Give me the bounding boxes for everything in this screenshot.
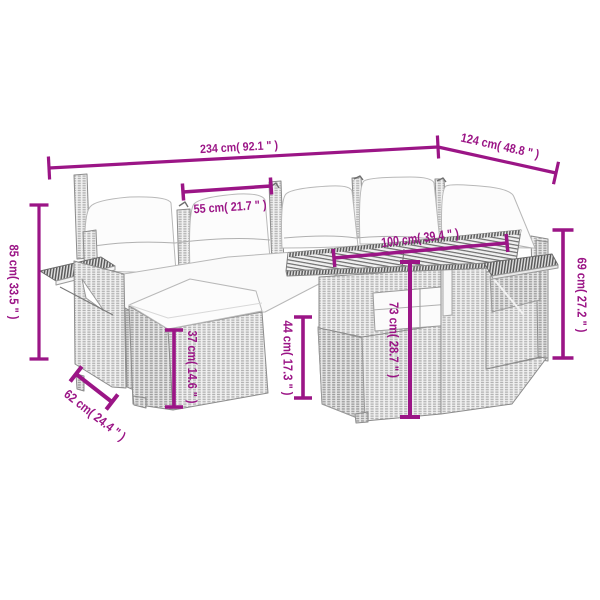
svg-text:37 cm( 14.6 " ): 37 cm( 14.6 " ) [185,331,200,404]
svg-text:73 cm( 28.7 " ): 73 cm( 28.7 " ) [387,302,402,378]
svg-text:85 cm( 33.5 " ): 85 cm( 33.5 " ) [7,245,22,320]
svg-text:69 cm( 27.2 " ): 69 cm( 27.2 " ) [575,258,590,333]
svg-text:44 cm( 17.3 " ): 44 cm( 17.3 " ) [281,321,296,396]
